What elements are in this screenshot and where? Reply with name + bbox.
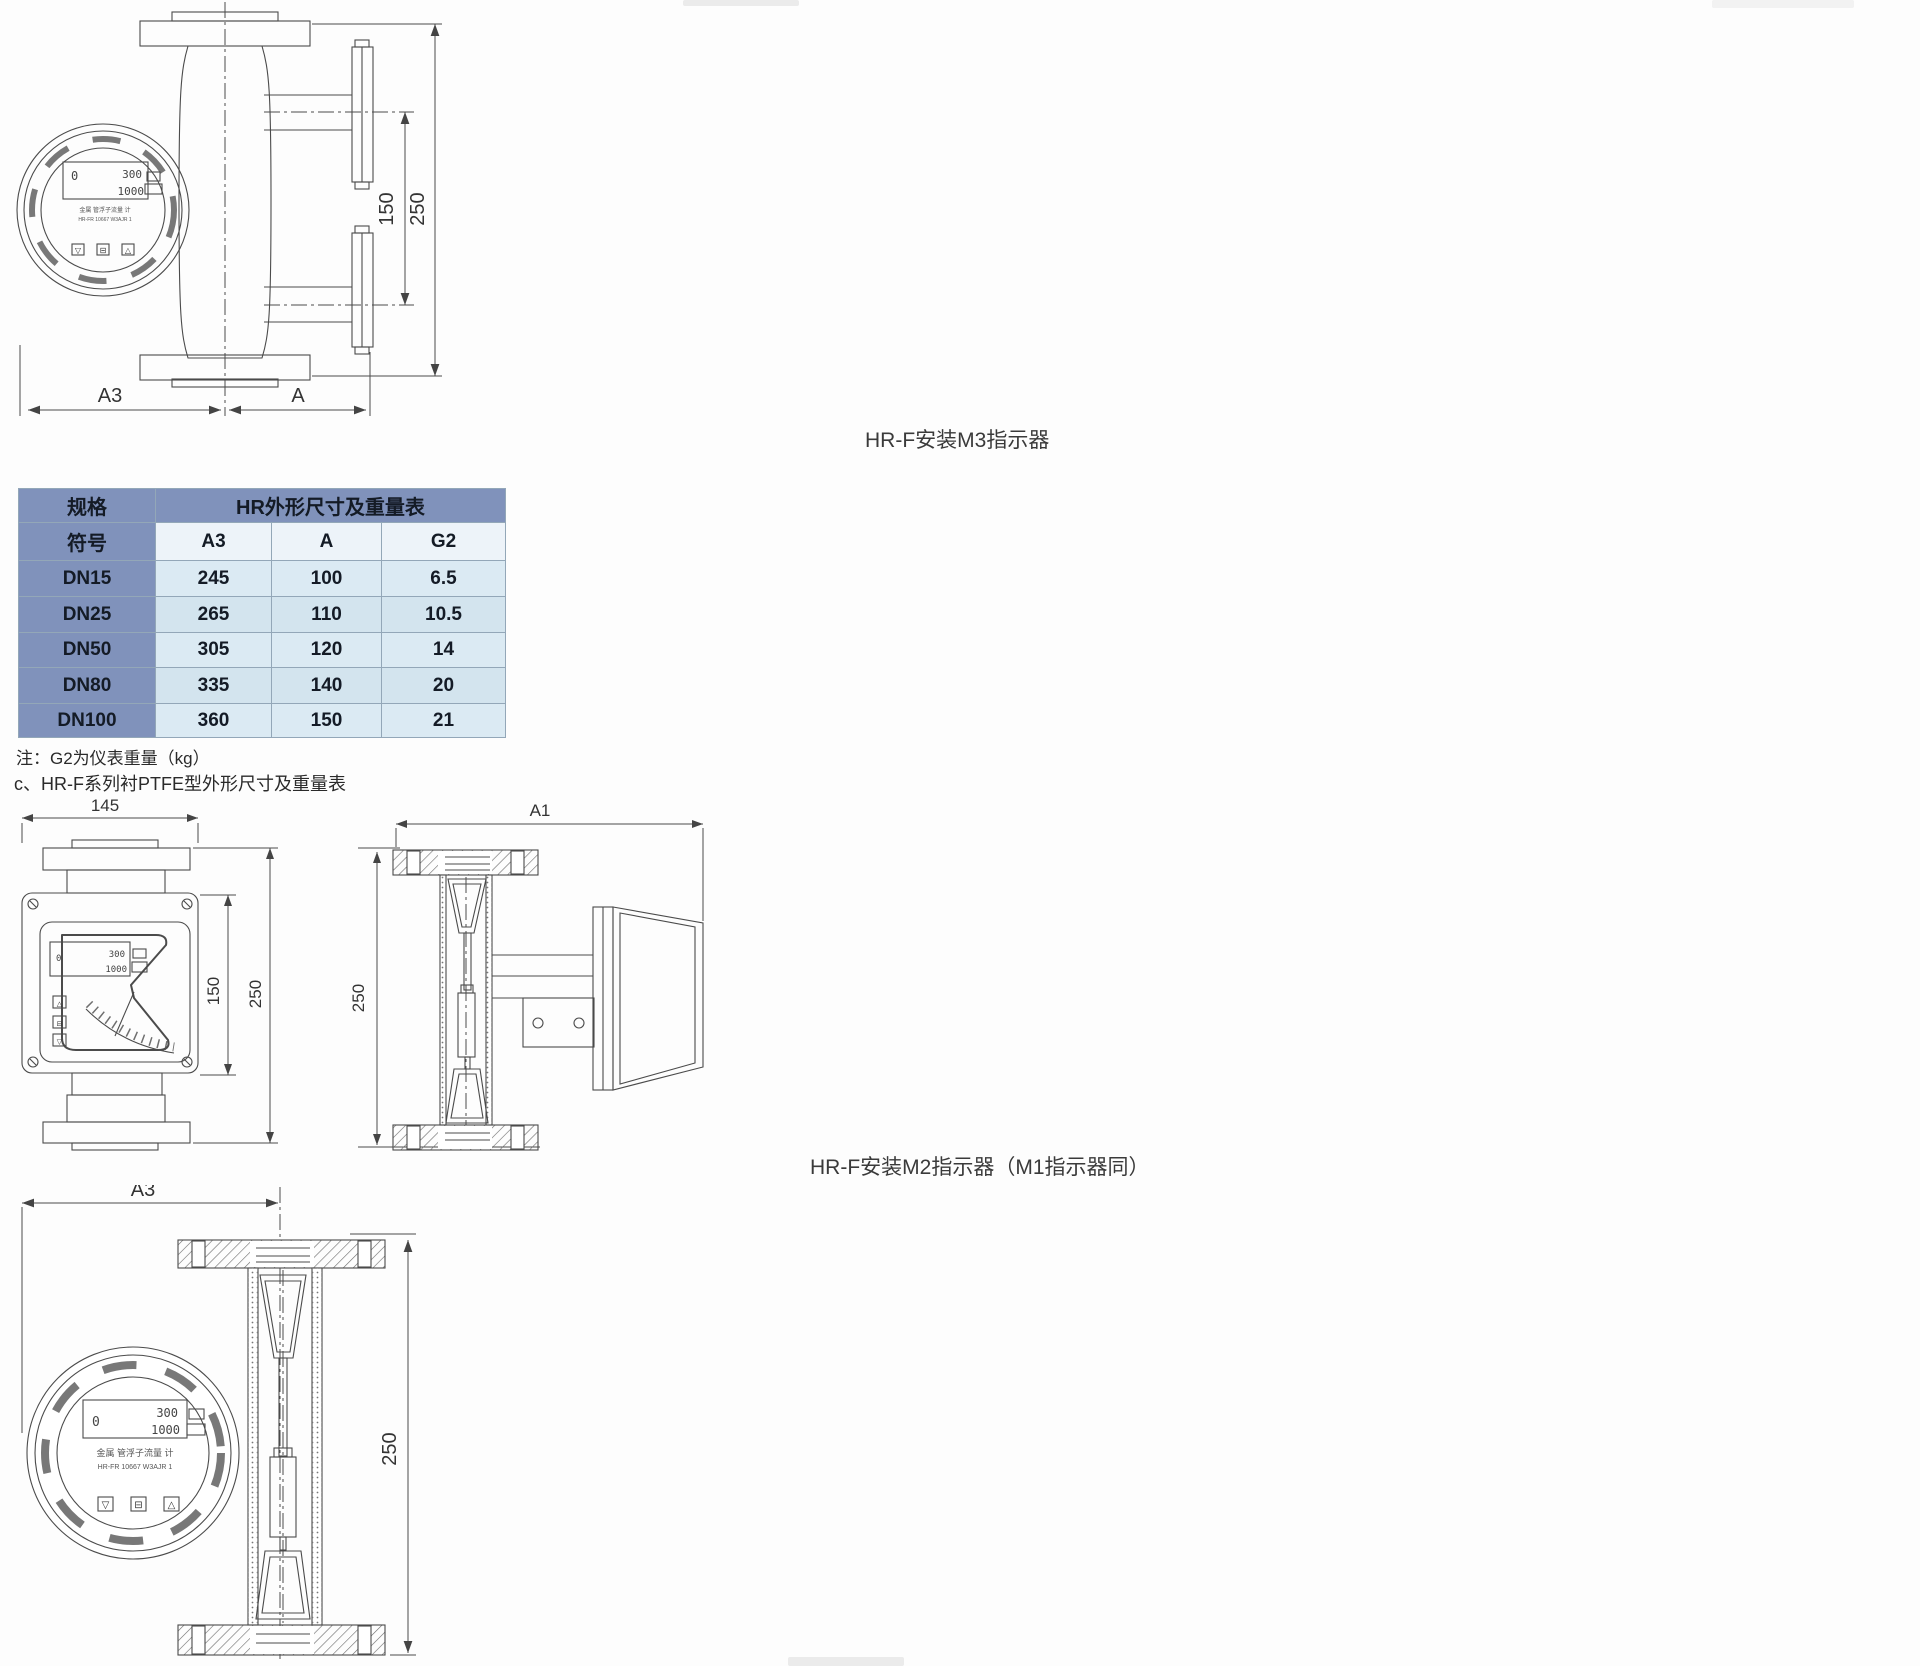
bottom-flange (393, 1125, 538, 1150)
dimension-weight-table: 规格 HR外形尺寸及重量表 符号 A3 A G2 DN15 245 100 6.… (18, 488, 506, 738)
cell-a: 110 (272, 597, 382, 633)
lcd-top-value: 300 (109, 950, 125, 960)
dimension-250: 250 (350, 1234, 416, 1655)
dim-label-a3: A3 (98, 385, 122, 407)
lcd-zero: 0 (92, 1415, 100, 1430)
top-fitting (43, 840, 190, 893)
row-spec: DN80 (19, 668, 156, 704)
scan-artifact-bottom (788, 1657, 904, 1666)
cell-a: 100 (272, 561, 382, 597)
dimension-150: 150 (376, 112, 405, 305)
cell-g2: 21 (382, 704, 506, 738)
faceplate-caption-1: 金属 管浮子流量 计 (79, 206, 130, 214)
lcd-top-value: 300 (122, 168, 142, 181)
float-internals (446, 879, 488, 1123)
cell-a: 150 (272, 704, 382, 738)
dim-label-a1: A1 (530, 801, 551, 820)
dimension-150: 150 (200, 895, 236, 1075)
button-up-icon: △ (57, 1001, 63, 1008)
lcd-bottom-value: 1000 (118, 185, 145, 198)
scan-artifact-top-right (1712, 0, 1854, 8)
button-up-icon: △ (125, 246, 132, 255)
lcd-top-value: 300 (156, 1406, 178, 1420)
drawing-meter-m3-side-view: 0 300 1000 金属 管浮子流量 计 HR-FR 10667 W3AJR … (0, 0, 460, 450)
table-corner-bottom: 符号 (19, 523, 156, 561)
caption-m3: HR-F安装M3指示器 (865, 424, 1049, 454)
dim-label-150: 150 (376, 192, 398, 225)
cell-a3: 305 (156, 633, 272, 668)
cell-g2: 20 (382, 668, 506, 704)
button-down-icon: ▽ (57, 1039, 63, 1046)
row-spec: DN100 (19, 704, 156, 738)
dim-label-145: 145 (91, 796, 119, 815)
scan-artifact-top-left (683, 0, 799, 6)
bottom-fitting (43, 1073, 190, 1150)
table-note: 注：G2为仪表重量（kg） (16, 744, 210, 769)
col-header-g2: G2 (382, 523, 506, 561)
drawing-section-with-round-indicator: A3 (0, 1185, 450, 1666)
cell-a3: 360 (156, 704, 272, 738)
cell-g2: 10.5 (382, 597, 506, 633)
top-flange (178, 1240, 385, 1268)
pointer-needle (115, 992, 134, 1036)
row-spec: DN15 (19, 561, 156, 597)
cell-g2: 14 (382, 633, 506, 668)
col-header-a: A (272, 523, 382, 561)
cell-g2: 6.5 (382, 561, 506, 597)
table-row: DN25 265 110 10.5 (19, 597, 506, 633)
cell-a3: 265 (156, 597, 272, 633)
button-mid-icon: ⊟ (134, 1500, 142, 1511)
button-up-icon: △ (168, 1500, 176, 1511)
dim-label-150: 150 (204, 977, 223, 1005)
drawing-meter-m2-front-view: 145 0 300 1000 △ ⊟ (0, 795, 300, 1175)
button-mid-icon: ⊟ (57, 1021, 63, 1028)
indicator-bracket (492, 955, 594, 1047)
table-row: DN100 360 150 21 (19, 704, 506, 738)
lcd-zero: 0 (56, 954, 61, 964)
button-mid-icon: ⊟ (100, 246, 107, 255)
dim-label-a: A (291, 385, 305, 407)
caption-m2: HR-F安装M2指示器（M1指示器同） (810, 1151, 1150, 1181)
dim-label-250: 250 (349, 984, 368, 1012)
top-flange (393, 850, 538, 875)
lined-tube (248, 1268, 322, 1625)
dim-label-a3: A3 (131, 1185, 155, 1201)
faceplate-caption-1: 金属 管浮子流量 计 (96, 1447, 173, 1458)
dim-label-250: 250 (379, 1432, 401, 1465)
section-c-heading: c、HR-F系列衬PTFE型外形尺寸及重量表 (14, 770, 346, 796)
lcd-bottom-value: 1000 (151, 1423, 180, 1437)
indicator-horn-housing (593, 907, 703, 1090)
button-down-icon: ▽ (102, 1500, 110, 1511)
indicator-buttons: ▽ ⊟ △ (72, 244, 134, 255)
dim-label-250: 250 (407, 192, 429, 225)
faceplate-caption-2: HR-FR 10667 W3AJR 1 (78, 217, 132, 223)
cell-a: 120 (272, 633, 382, 668)
cell-a3: 335 (156, 668, 272, 704)
bottom-flange (178, 1625, 385, 1655)
row-spec: DN25 (19, 597, 156, 633)
cell-a: 140 (272, 668, 382, 704)
col-header-a3: A3 (156, 523, 272, 561)
round-indicator-face: 0 300 1000 金属 管浮子流量 计 HR-FR 10667 W3AJR … (27, 1347, 239, 1559)
lined-tube (440, 875, 492, 1125)
cell-a3: 245 (156, 561, 272, 597)
indicator-housing: 0 300 1000 △ ⊟ ▽ (22, 893, 198, 1073)
table-row: DN80 335 140 20 (19, 668, 506, 704)
button-down-icon: ▽ (75, 246, 82, 255)
lcd-zero: 0 (71, 169, 78, 183)
datasheet-page: 0 300 1000 金属 管浮子流量 计 HR-FR 10667 W3AJR … (0, 0, 1920, 1666)
dim-label-250: 250 (246, 980, 265, 1008)
table-row: DN50 305 120 14 (19, 633, 506, 668)
table-title: HR外形尺寸及重量表 (156, 489, 506, 523)
scale-arc (86, 992, 174, 1053)
lcd-bottom-value: 1000 (105, 965, 127, 975)
indicator-buttons: △ ⊟ ▽ (53, 996, 66, 1046)
table-corner-top: 规格 (19, 489, 156, 523)
dimension-145: 145 (22, 796, 198, 843)
drawing-ptfe-section-view: A1 250 (290, 795, 730, 1185)
faceplate-caption-2: HR-FR 10667 W3AJR 1 (98, 1464, 173, 1471)
row-spec: DN50 (19, 633, 156, 668)
round-indicator-face: 0 300 1000 金属 管浮子流量 计 HR-FR 10667 W3AJR … (17, 124, 189, 296)
table-row: DN15 245 100 6.5 (19, 561, 506, 597)
